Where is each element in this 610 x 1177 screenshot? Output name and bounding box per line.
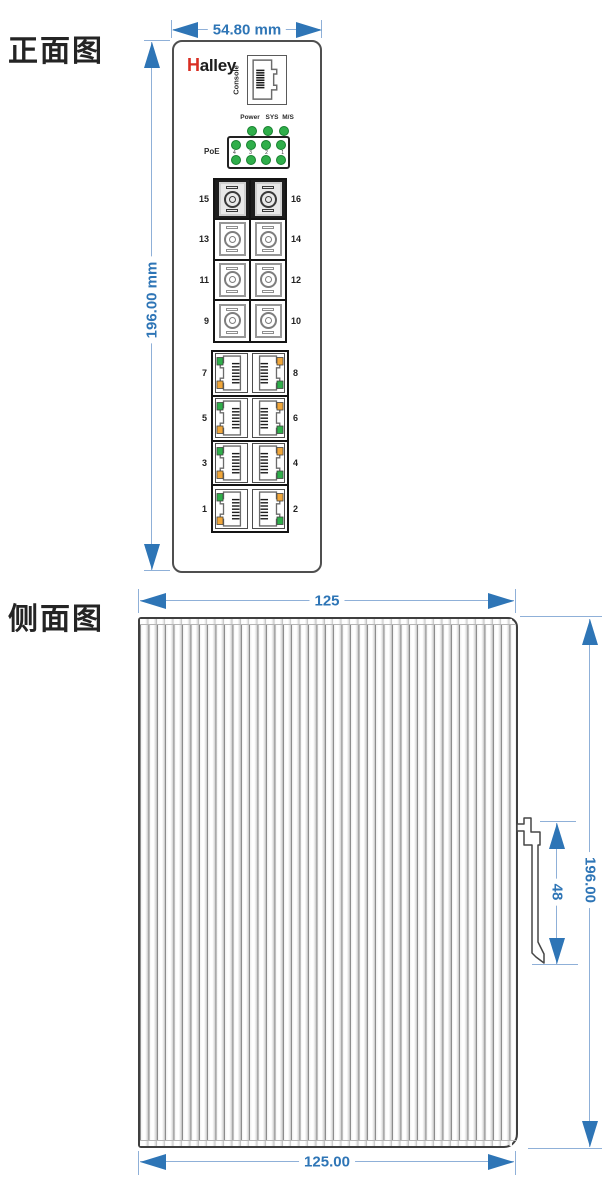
- sc-fiber-port: [215, 261, 251, 299]
- extension-line: [515, 589, 516, 613]
- rj45-jack-icon: [253, 354, 284, 392]
- port-led: [277, 403, 283, 411]
- port-number: 11: [189, 275, 209, 285]
- dimension-arrow-icon: [296, 22, 322, 38]
- rj45-port: [250, 486, 287, 531]
- sc-fiber-port: [215, 220, 251, 258]
- poe-led: [276, 155, 286, 165]
- console-port-label: Console: [232, 65, 241, 95]
- side-bottom-dimension: 125.00: [299, 1154, 355, 1171]
- port-led: [277, 493, 283, 501]
- poe-led: [246, 140, 256, 150]
- rj45-jack-icon: [216, 399, 247, 437]
- port-led: [277, 471, 283, 479]
- port-number: 13: [189, 234, 209, 244]
- sc-fiber-port: [251, 301, 285, 341]
- rj45-jack-icon: [216, 444, 247, 482]
- port-led: [217, 358, 223, 366]
- poe-led-row: [230, 155, 287, 165]
- dimension-arrow-icon: [549, 938, 565, 964]
- side-view-title: 侧面图: [8, 594, 104, 638]
- port-led: [277, 517, 283, 525]
- switch-front-panel: Halley Console Power SYS M/S PoE: [172, 40, 322, 573]
- port-led: [217, 517, 223, 525]
- rj45-port: [213, 486, 250, 531]
- poe-led-row: [230, 140, 287, 150]
- sc-fiber-port: [251, 261, 285, 299]
- port-led: [277, 381, 283, 389]
- dimension-arrow-icon: [144, 42, 160, 68]
- fiber-port-block: 15 16 13: [213, 178, 287, 343]
- technical-drawing-canvas: 正面图 54.80 mm 196.00 mm Halley Console: [0, 0, 610, 1177]
- port-number: 2: [293, 504, 313, 514]
- port-number: 7: [187, 368, 207, 378]
- poe-led-panel: 4 3 2 1: [227, 136, 290, 169]
- dimension-arrow-icon: [172, 22, 198, 38]
- rj45-port-row: 7: [213, 352, 287, 397]
- rj45-jack-icon: [216, 490, 247, 528]
- sys-led-label: SYS: [265, 114, 278, 121]
- fin-notches: [140, 619, 516, 625]
- port-led: [277, 426, 283, 434]
- rj45-port: [213, 352, 250, 395]
- rj45-port: [250, 397, 287, 440]
- poe-label: PoE: [204, 147, 220, 156]
- front-height-dimension: 196.00 mm: [144, 257, 161, 344]
- port-led: [277, 358, 283, 366]
- rj45-jack-icon: [253, 444, 284, 482]
- port-number: 3: [187, 458, 207, 468]
- poe-led: [261, 155, 271, 165]
- rj45-port-row: 3: [213, 442, 287, 487]
- rj45-jack-icon: [216, 354, 247, 392]
- port-number: 14: [291, 234, 311, 244]
- port-led: [217, 493, 223, 501]
- poe-led: [276, 140, 286, 150]
- brand-logo: Halley: [187, 55, 236, 76]
- sys-led: [263, 126, 273, 136]
- ms-led-label: M/S: [282, 114, 294, 121]
- port-number: 4: [293, 458, 313, 468]
- extension-line: [144, 40, 170, 41]
- side-height-dimension: 196.00: [582, 852, 599, 908]
- fiber-port-row: 9 10: [215, 301, 285, 341]
- dimension-arrow-icon: [144, 544, 160, 570]
- port-number: 16: [291, 194, 311, 204]
- fiber-port-row: 15 16: [215, 180, 285, 220]
- rj45-port: [250, 442, 287, 485]
- port-led: [277, 447, 283, 455]
- rj45-jack-icon: [248, 56, 286, 104]
- extension-line: [138, 1151, 139, 1175]
- dimension-arrow-icon: [488, 593, 514, 609]
- poe-led: [246, 155, 256, 165]
- poe-led: [261, 140, 271, 150]
- rj45-port-row: 5: [213, 397, 287, 442]
- rj45-jack-icon: [253, 490, 284, 528]
- ms-led: [279, 126, 289, 136]
- port-number: 15: [189, 194, 209, 204]
- port-number: 9: [189, 316, 209, 326]
- din-rail-clip: [516, 816, 548, 968]
- fiber-port-row: 11 12: [215, 261, 285, 301]
- fiber-port-row: 13 14: [215, 220, 285, 260]
- power-led-label: Power: [240, 114, 260, 121]
- front-width-dimension: 54.80 mm: [208, 22, 286, 39]
- extension-line: [520, 616, 602, 617]
- clip-dimension: 48: [549, 879, 566, 906]
- port-number: 10: [291, 316, 311, 326]
- rj45-port: [213, 442, 250, 485]
- port-led: [217, 471, 223, 479]
- power-led: [247, 126, 257, 136]
- dimension-arrow-icon: [582, 1121, 598, 1147]
- port-led: [217, 426, 223, 434]
- port-number: 5: [187, 413, 207, 423]
- extension-line: [515, 1151, 516, 1175]
- dimension-arrow-icon: [140, 593, 166, 609]
- sc-fiber-port: [251, 220, 285, 258]
- extension-line: [144, 570, 170, 571]
- fin-notches: [140, 1140, 516, 1146]
- extension-line: [138, 589, 139, 613]
- port-number: 1: [187, 504, 207, 514]
- rj45-port: [250, 352, 287, 395]
- port-number: 8: [293, 368, 313, 378]
- extension-line: [528, 1148, 602, 1149]
- front-view-title: 正面图: [8, 26, 104, 70]
- port-led: [217, 381, 223, 389]
- poe-led: [231, 140, 241, 150]
- sc-fiber-port: [215, 301, 251, 341]
- poe-led: [231, 155, 241, 165]
- port-number: 12: [291, 275, 311, 285]
- dimension-arrow-icon: [582, 619, 598, 645]
- port-led: [217, 447, 223, 455]
- rj45-port-block: 7: [211, 350, 289, 533]
- side-top-dimension: 125: [309, 593, 344, 610]
- sc-fiber-port: [215, 180, 251, 218]
- dimension-arrow-icon: [140, 1154, 166, 1170]
- rj45-port-row: 1: [213, 486, 287, 531]
- dimension-arrow-icon: [488, 1154, 514, 1170]
- port-number: 6: [293, 413, 313, 423]
- logo-mark-icon: H: [187, 55, 200, 75]
- switch-side-body: [138, 617, 518, 1148]
- console-rj45-port: [247, 55, 287, 105]
- rj45-jack-icon: [253, 399, 284, 437]
- rj45-port: [213, 397, 250, 440]
- dimension-arrow-icon: [549, 823, 565, 849]
- sc-fiber-port: [251, 180, 285, 218]
- port-led: [217, 403, 223, 411]
